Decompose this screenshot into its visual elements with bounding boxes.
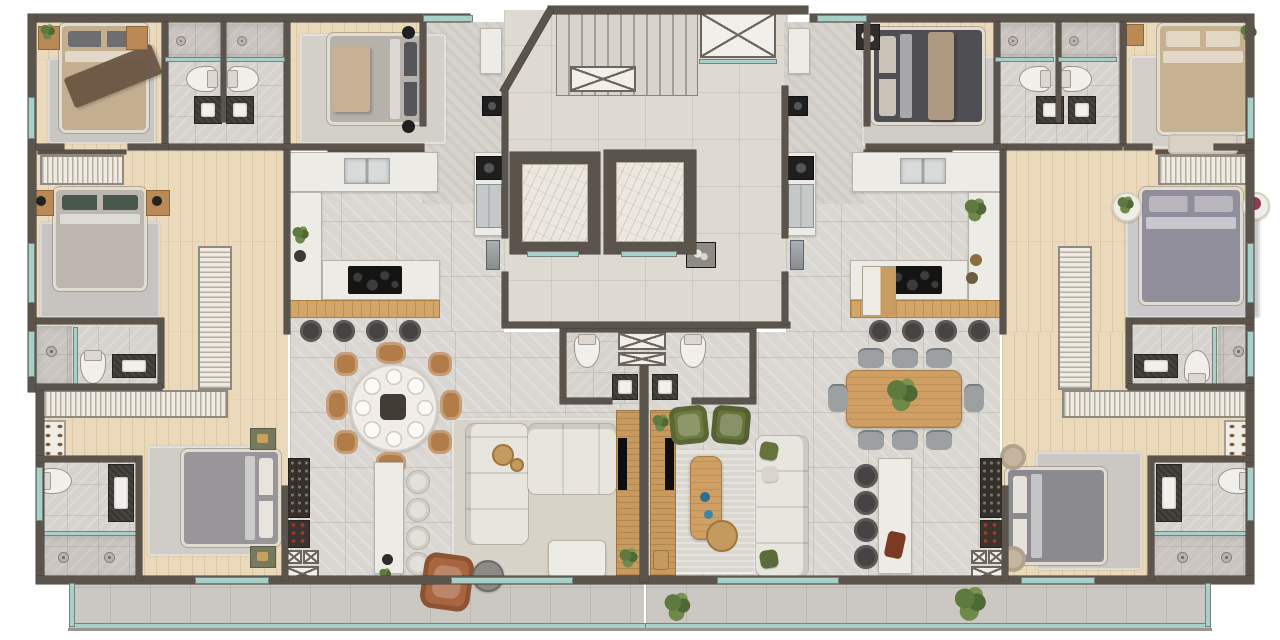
dining-chair (858, 430, 884, 450)
wardrobe-bedroom2-right (1158, 155, 1252, 185)
wall (162, 22, 168, 146)
window (29, 332, 34, 376)
shaft (303, 550, 319, 564)
kitchen-sink-left (344, 158, 390, 184)
duct-shaft (618, 352, 666, 366)
balcony-railing (1206, 584, 1210, 626)
bar-stool (300, 320, 322, 342)
window (1248, 332, 1253, 376)
wall-lamp (402, 26, 415, 39)
wall (502, 86, 508, 238)
shower-glass (74, 328, 77, 384)
wall (692, 398, 756, 404)
entry-door-left (486, 240, 500, 270)
balcony-door (452, 578, 572, 583)
closet-track (38, 150, 126, 154)
pillow (761, 465, 779, 483)
plant (619, 548, 639, 568)
kitchen-bowls-left (294, 250, 306, 262)
stool (406, 526, 430, 550)
window (424, 16, 472, 21)
floor-plan (0, 0, 1280, 640)
shower-glass (1059, 58, 1116, 61)
dining-chair (334, 352, 358, 376)
stool (854, 491, 878, 515)
balcony-door (718, 578, 838, 583)
runner-bedroom1-right (928, 32, 954, 120)
wall (994, 144, 1122, 150)
coffee-bar-left (288, 520, 310, 548)
powder-sink-left (612, 374, 638, 400)
dining-chair (926, 348, 952, 368)
bar-stool (399, 320, 421, 342)
wall (560, 326, 566, 404)
bed-bedroom2-right (1160, 26, 1246, 132)
window (818, 16, 866, 21)
dining-chair (892, 348, 918, 368)
vanity-bathroom2-left (108, 464, 134, 522)
bar-stool (333, 320, 355, 342)
balcony-plant (954, 586, 988, 622)
stair-landing-hatch (570, 66, 636, 92)
balcony-door (196, 578, 268, 583)
sofa-left-main (528, 424, 616, 494)
stool (854, 518, 878, 542)
decor-board (653, 550, 669, 570)
bed-bedroom3-left (184, 452, 278, 544)
oven-left (476, 156, 502, 180)
dining-chair (858, 348, 884, 368)
wall (162, 144, 290, 150)
shaft (286, 550, 302, 564)
entry-appliance-right (788, 96, 808, 116)
wall (1002, 486, 1008, 580)
wall (1126, 318, 1254, 324)
balcony-right-floor (646, 582, 1210, 628)
wall (1148, 456, 1154, 580)
shower-glass (1152, 532, 1250, 535)
elevator-car (522, 164, 588, 242)
bar-stool (869, 320, 891, 342)
wall (866, 144, 1006, 150)
shower-bath2-right (1059, 24, 1116, 58)
vanity-ensuite-right (1134, 354, 1178, 378)
window (1248, 98, 1253, 138)
railing-frame (68, 628, 648, 631)
bathroom-vanity (1068, 96, 1096, 124)
railing-frame (644, 628, 1212, 631)
wall-lamp (402, 120, 415, 133)
window (1248, 468, 1253, 520)
bar-stool (935, 320, 957, 342)
blanket-bedroom2-left (332, 46, 370, 112)
shower-glass (996, 58, 1053, 61)
wall (1056, 22, 1061, 122)
window (37, 468, 42, 520)
kitchen-sink-right (900, 158, 946, 184)
balcony-door (1022, 578, 1094, 583)
dining-chair (334, 430, 358, 454)
shelf (1126, 24, 1144, 46)
shower-head (1008, 36, 1018, 46)
floor-plan-canvas (0, 0, 1280, 640)
bar-stool (366, 320, 388, 342)
lamp (36, 196, 46, 206)
wall (1214, 144, 1254, 150)
wall (284, 22, 290, 146)
stool (406, 470, 430, 494)
shower-glass (166, 58, 220, 61)
shower-bath2-left (227, 24, 284, 58)
elevator-car (616, 162, 684, 242)
window (29, 244, 34, 302)
nightstand-plant (40, 24, 56, 40)
centerpiece (380, 394, 406, 420)
wall (548, 6, 808, 14)
shower-head (176, 36, 186, 46)
duct-shaft (618, 332, 666, 350)
wall (221, 22, 226, 122)
wall (782, 86, 788, 238)
side-table (250, 428, 276, 450)
wall (128, 144, 168, 150)
wall (1126, 318, 1132, 388)
coffee-bar-right (980, 520, 1002, 548)
wall (1124, 144, 1152, 150)
plant (652, 414, 670, 432)
shower-head (1233, 346, 1244, 357)
dining-chair (926, 430, 952, 450)
wall (810, 14, 1252, 22)
wall (560, 398, 612, 404)
shower-head (1221, 552, 1232, 563)
ottoman (548, 540, 606, 578)
sofa-left-chaise (466, 424, 528, 544)
wall (1000, 150, 1006, 334)
dining-chair (428, 352, 452, 376)
shower-glass (40, 532, 138, 535)
shower-bathroom2-right (1152, 536, 1250, 578)
dining-chair (428, 430, 452, 454)
balcony-railing (70, 584, 74, 626)
toilet (186, 66, 218, 92)
cooktop-left (348, 266, 402, 294)
shower-head (1069, 36, 1079, 46)
wall (284, 150, 290, 334)
shower-glass (227, 58, 284, 61)
entry-cabinet-right (788, 28, 810, 74)
stool (406, 498, 430, 522)
wall (1128, 384, 1254, 390)
wardrobe-closet-left (38, 390, 228, 418)
tv-left (618, 438, 627, 490)
wall (1148, 456, 1254, 462)
wine-rack-left (288, 458, 310, 518)
bed-master-right (1142, 190, 1240, 302)
balcony-plant (664, 592, 692, 622)
wall (750, 326, 756, 404)
plant (1117, 196, 1135, 214)
wall (28, 14, 470, 22)
kitchen-plant-right (964, 198, 988, 222)
wall (158, 318, 164, 388)
shower-bath1-right (996, 24, 1053, 58)
entry-sideboard-right (862, 266, 896, 316)
fridge-right (788, 184, 814, 228)
entry-appliance-left (482, 96, 502, 116)
pouf (1000, 444, 1026, 470)
shower-head (237, 36, 247, 46)
wardrobe-hall-left (198, 246, 232, 390)
stool (854, 545, 878, 569)
armchair-green (710, 404, 751, 445)
toilet (1019, 66, 1051, 92)
shower-head (46, 346, 57, 357)
powder-sink-right (652, 374, 678, 400)
shower-bathroom2-left (40, 536, 138, 578)
side-table (706, 520, 738, 552)
wall (502, 322, 790, 328)
elevator-door (528, 252, 578, 256)
wall (36, 144, 64, 150)
cooktop-right (888, 266, 942, 294)
wall (782, 272, 788, 324)
shower-glass (1213, 328, 1216, 384)
wall (282, 486, 288, 580)
balcony-left-floor (70, 582, 644, 628)
wall (420, 22, 426, 126)
wall (864, 22, 870, 126)
wardrobe-bedroom1-left (40, 155, 124, 185)
tv-right (665, 438, 674, 490)
wall (36, 318, 164, 324)
wine-rack-right (980, 458, 1002, 518)
lamp (152, 196, 162, 206)
dining-chair (828, 384, 848, 412)
wardrobe-hall-right (1058, 246, 1092, 390)
dining-chair (964, 384, 984, 412)
shower-head (58, 552, 69, 563)
dining-chair (326, 390, 348, 420)
window (29, 98, 34, 138)
bar-stool (968, 320, 990, 342)
toilet-ensuite-right (1184, 350, 1210, 384)
wall (284, 144, 424, 150)
shaft (971, 550, 987, 564)
vanity-bathroom2-right (1156, 464, 1182, 522)
wall (136, 456, 142, 580)
decor-blue (700, 492, 710, 502)
wall (1120, 22, 1126, 146)
shower-head (104, 552, 115, 563)
shower-head (1177, 552, 1188, 563)
wall (994, 22, 1000, 146)
wardrobe-closet-right (1062, 390, 1252, 418)
wall (502, 272, 508, 324)
void-glass (700, 60, 776, 63)
wall (36, 456, 142, 462)
bed-bedroom3-right (1008, 470, 1104, 562)
kitchen-plant-left (292, 226, 310, 244)
wall (36, 384, 162, 390)
side-table (250, 546, 276, 568)
bed-master-left (56, 190, 144, 288)
decor-blue (704, 510, 713, 519)
kitchen-counter-arm-left (288, 192, 322, 302)
dining-chair (440, 390, 462, 420)
kitchen-bar-left (288, 300, 440, 318)
fridge-left (476, 184, 502, 228)
bathroom-vanity (194, 96, 222, 124)
void-shaft (700, 12, 776, 58)
oven-right (788, 156, 814, 180)
pillow-green (759, 549, 780, 570)
wall (640, 366, 648, 582)
nightstand (126, 26, 148, 50)
entry-door-right (790, 240, 804, 270)
bar-decor (382, 554, 393, 565)
dining-chair (892, 430, 918, 450)
bar-stool (902, 320, 924, 342)
vanity-ensuite-left (112, 354, 156, 378)
shower-bath1-left (166, 24, 220, 58)
elevator-door (622, 252, 676, 256)
kitchen-bowl-right (970, 254, 982, 266)
stool (854, 464, 878, 488)
bathroom-vanity (226, 96, 254, 124)
table-plant (886, 378, 920, 412)
window (1248, 244, 1253, 302)
kitchen-bowl-right (966, 272, 978, 284)
entry-cabinet-left (480, 28, 502, 74)
side-table (510, 458, 524, 472)
dining-chair (376, 342, 406, 364)
armchair-green (668, 404, 710, 446)
